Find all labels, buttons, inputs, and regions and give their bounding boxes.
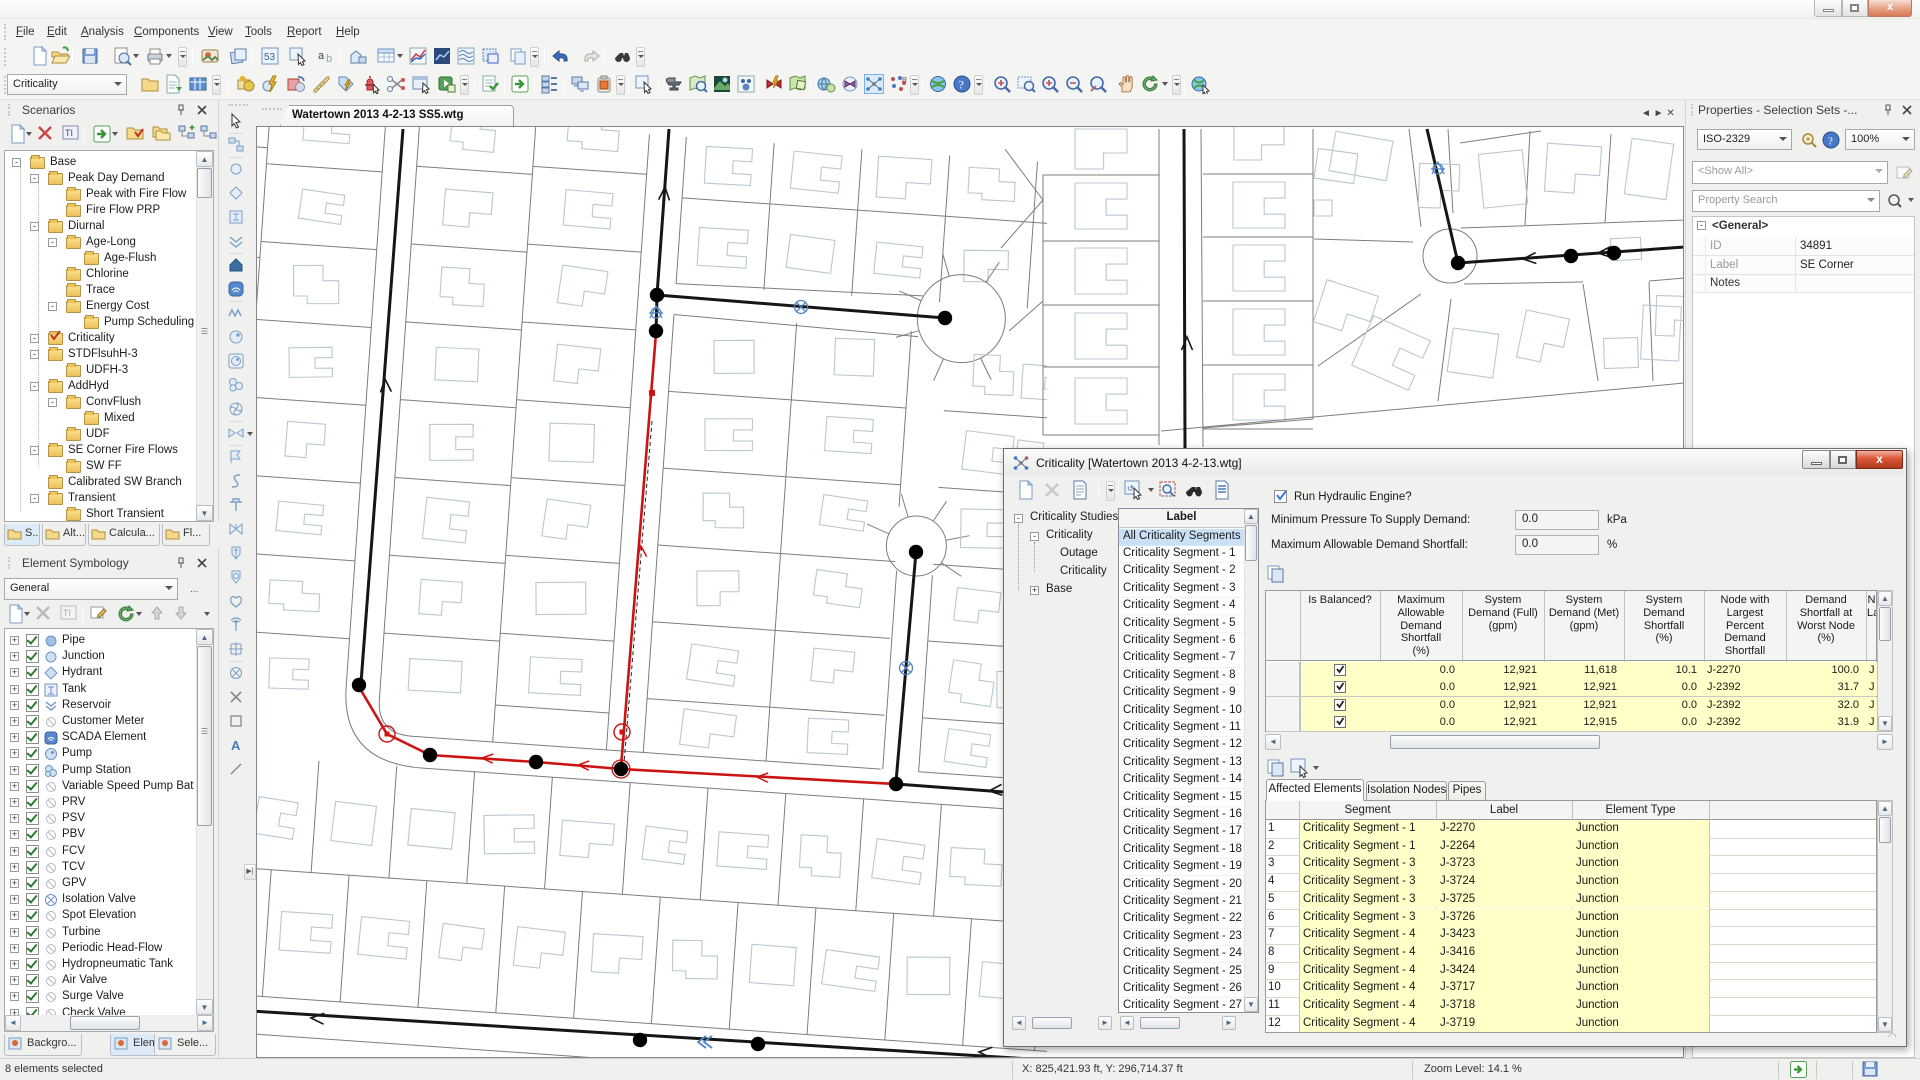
svg-text:53: 53: [264, 52, 276, 63]
svg-text:A: A: [231, 738, 241, 753]
svg-text:b: b: [326, 53, 332, 65]
svg-text:R: R: [902, 77, 907, 84]
svg-text:TI: TI: [63, 608, 71, 618]
svg-text:a: a: [318, 50, 325, 62]
svg-text:TI: TI: [65, 128, 73, 138]
svg-text:?: ?: [959, 78, 964, 92]
svg-text:?: ?: [1828, 136, 1833, 148]
